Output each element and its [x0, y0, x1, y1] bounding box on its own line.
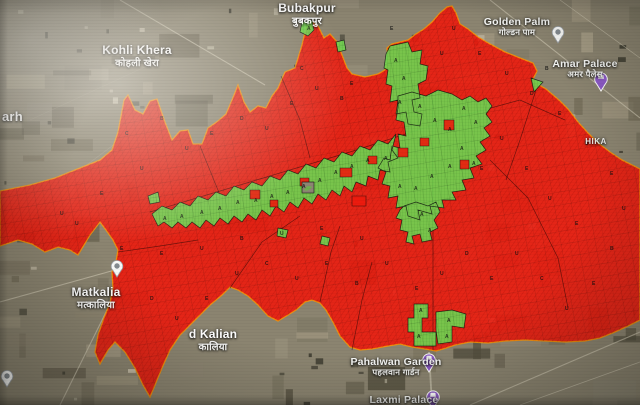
svg-text:A: A: [462, 106, 466, 112]
svg-text:A: A: [398, 184, 402, 190]
svg-text:A: A: [398, 100, 402, 106]
svg-text:B: B: [240, 236, 244, 242]
svg-text:A: A: [218, 206, 222, 212]
label-matkalia[interactable]: Matkalia मत्कालिया: [72, 286, 121, 311]
svg-text:D: D: [150, 296, 154, 302]
svg-text:U: U: [265, 126, 269, 132]
label-arh[interactable]: arh: [2, 110, 23, 125]
svg-text:A: A: [472, 161, 476, 167]
svg-text:B: B: [545, 66, 549, 72]
map-screenshot: AAAAAAAAAAAAAAAAAAAAAAAAAAAAAAAAAAAUEUCB…: [0, 0, 640, 405]
svg-text:A: A: [236, 200, 240, 206]
svg-text:E: E: [390, 26, 394, 32]
svg-text:A: A: [384, 156, 388, 162]
svg-text:D: D: [465, 251, 469, 257]
svg-text:A: A: [430, 174, 434, 180]
golden-palm-pin[interactable]: [552, 27, 564, 44]
svg-text:U: U: [622, 206, 626, 212]
svg-text:A: A: [418, 104, 422, 110]
svg-text:U: U: [200, 246, 204, 252]
svg-text:D: D: [530, 91, 534, 97]
svg-text:A: A: [318, 178, 322, 184]
svg-text:U: U: [140, 166, 144, 172]
svg-text:U: U: [452, 26, 456, 32]
svg-text:A: A: [254, 198, 258, 204]
svg-text:U: U: [185, 146, 189, 152]
label-laxmi-palace[interactable]: Laxmi Palace: [370, 394, 439, 405]
svg-text:A: A: [402, 76, 406, 82]
svg-text:U: U: [75, 221, 79, 227]
svg-text:A: A: [460, 146, 464, 152]
svg-text:U: U: [360, 236, 364, 242]
label-chika[interactable]: HIKA: [585, 137, 607, 146]
svg-text:U: U: [440, 271, 444, 277]
svg-text:A: A: [417, 334, 421, 340]
svg-text:A: A: [419, 308, 423, 314]
svg-text:U: U: [500, 136, 504, 142]
svg-text:A: A: [414, 186, 418, 192]
label-kohli-khera[interactable]: Kohli Khera कोहली खेरा: [102, 44, 172, 69]
svg-text:U: U: [280, 231, 284, 237]
svg-text:C: C: [300, 66, 304, 72]
bottom-left-pin[interactable]: [1, 371, 13, 388]
svg-text:U: U: [440, 51, 444, 57]
svg-text:A: A: [180, 214, 184, 220]
svg-text:D: D: [240, 116, 244, 122]
zone-overlay[interactable]: AAAAAAAAAAAAAAAAAAAAAAAAAAAAAAAAAAAUEUCB…: [0, 0, 640, 405]
svg-text:A: A: [448, 127, 452, 133]
svg-text:B: B: [355, 281, 359, 287]
svg-text:B: B: [610, 246, 614, 252]
svg-text:U: U: [60, 211, 64, 217]
label-golden-palm[interactable]: Golden Palm गोल्डन पाम: [484, 16, 550, 38]
svg-text:U: U: [565, 306, 569, 312]
svg-text:A: A: [445, 334, 449, 340]
svg-text:U: U: [385, 261, 389, 267]
svg-text:B: B: [340, 96, 344, 102]
svg-text:U: U: [235, 271, 239, 277]
label-pahalwan-garden[interactable]: Pahalwan Garden पहलवान गार्डन: [350, 356, 441, 378]
svg-text:A: A: [200, 210, 204, 216]
svg-text:U: U: [175, 316, 179, 322]
svg-text:A: A: [420, 212, 424, 218]
svg-text:U: U: [295, 276, 299, 282]
svg-text:U: U: [505, 71, 509, 77]
svg-text:A: A: [394, 58, 398, 64]
svg-text:U: U: [548, 196, 552, 202]
red-zone-parcel-grid: [0, 6, 640, 397]
svg-text:A: A: [433, 118, 437, 124]
svg-text:A: A: [286, 190, 290, 196]
svg-text:A: A: [447, 318, 451, 324]
svg-text:C: C: [125, 131, 129, 137]
svg-text:C: C: [265, 261, 269, 267]
svg-text:A: A: [270, 194, 274, 200]
svg-text:C: C: [540, 276, 544, 282]
label-bubakpur[interactable]: Bubakpur बुबकपुर: [278, 2, 336, 27]
svg-text:A: A: [428, 228, 432, 234]
svg-text:A: A: [366, 158, 370, 164]
svg-text:U: U: [515, 251, 519, 257]
svg-text:B: B: [160, 116, 164, 122]
svg-text:A: A: [448, 164, 452, 170]
svg-text:A: A: [302, 184, 306, 190]
svg-text:A: A: [163, 216, 167, 222]
label-amar-palace[interactable]: Amar Palace अमर पैलेस: [552, 58, 617, 80]
svg-text:A: A: [350, 164, 354, 170]
label-d-kalian[interactable]: d Kalian कालिया: [189, 328, 237, 353]
svg-text:A: A: [474, 120, 478, 126]
svg-text:A: A: [334, 170, 338, 176]
svg-text:U: U: [315, 86, 319, 92]
